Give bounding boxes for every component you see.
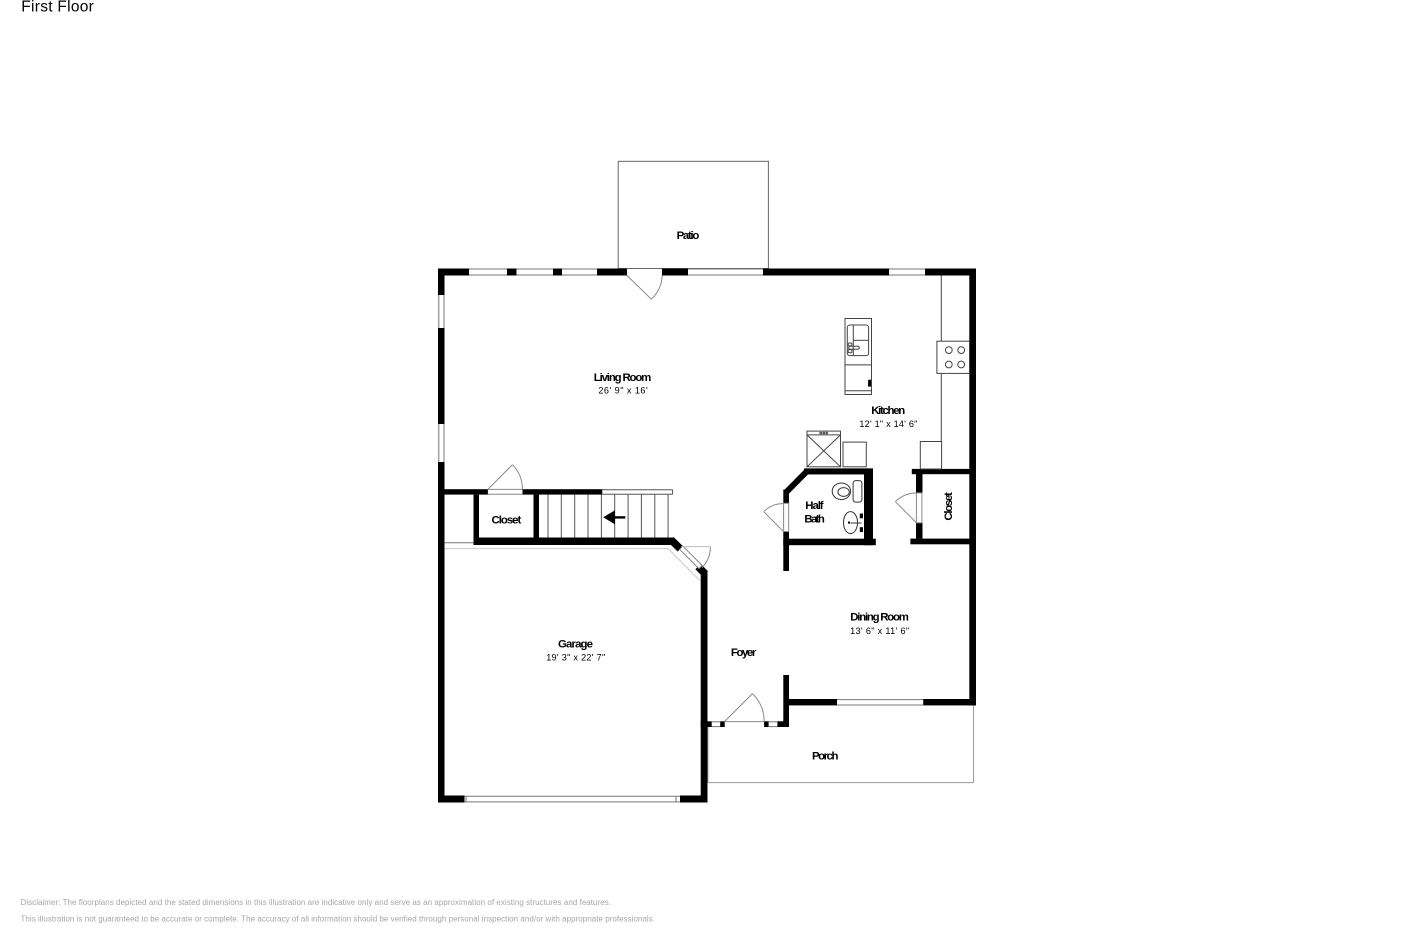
svg-text:Closet: Closet — [943, 492, 955, 521]
svg-text:Dining Room: Dining Room — [850, 612, 909, 624]
svg-text:First Floor: First Floor — [21, 0, 94, 16]
svg-text:Half: Half — [805, 500, 824, 512]
svg-text:This illustration is not guara: This illustration is not guaranteed to b… — [21, 914, 656, 923]
svg-text:Living Room: Living Room — [594, 372, 652, 384]
svg-text:13' 6" x 11' 6": 13' 6" x 11' 6" — [850, 626, 909, 636]
svg-text:19' 3" x 22' 7": 19' 3" x 22' 7" — [546, 653, 605, 663]
svg-text:12' 1" x 14' 6": 12' 1" x 14' 6" — [859, 419, 917, 429]
svg-text:26' 9" x 16': 26' 9" x 16' — [598, 385, 648, 395]
svg-text:Patio: Patio — [677, 230, 700, 242]
svg-text:Garage: Garage — [558, 638, 593, 650]
svg-text:Porch: Porch — [812, 751, 839, 763]
svg-text:Closet: Closet — [492, 515, 522, 527]
svg-text:Kitchen: Kitchen — [871, 405, 905, 417]
svg-text:Bath: Bath — [804, 513, 824, 525]
svg-text:Foyer: Foyer — [731, 647, 757, 659]
svg-text:Disclaimer: The floorplans dep: Disclaimer: The floorplans depicted and … — [21, 898, 612, 907]
